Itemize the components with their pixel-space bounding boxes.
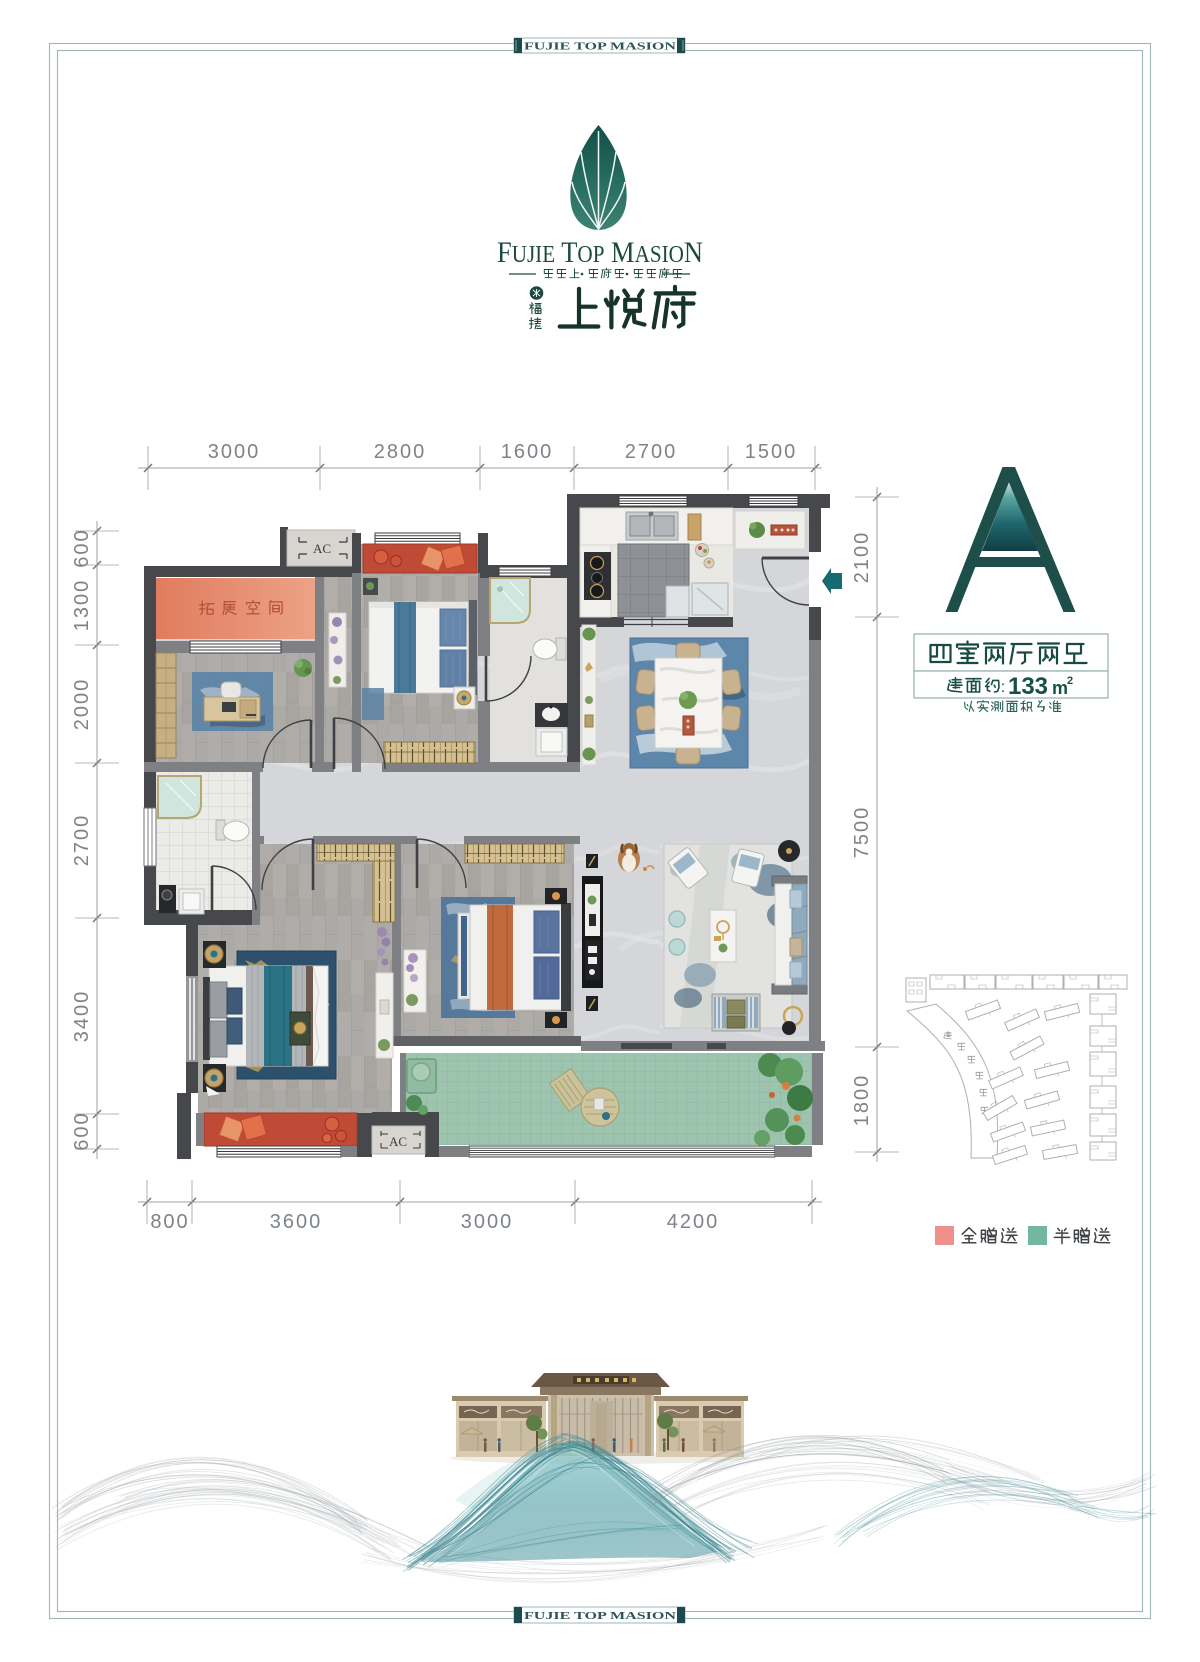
svg-text:m: m — [1052, 678, 1068, 698]
svg-text:2: 2 — [1067, 675, 1073, 687]
svg-text:800: 800 — [150, 1211, 189, 1233]
svg-text:FUJIE TOP MASION: FUJIE TOP MASION — [524, 1611, 677, 1622]
svg-text:133: 133 — [1008, 673, 1048, 700]
svg-text:4200: 4200 — [667, 1211, 720, 1233]
svg-text:1600: 1600 — [501, 441, 554, 463]
svg-text:2000: 2000 — [71, 678, 93, 731]
svg-text:7500: 7500 — [851, 806, 873, 859]
svg-text:2800: 2800 — [374, 441, 427, 463]
svg-text:1800: 1800 — [851, 1074, 873, 1127]
svg-text:3000: 3000 — [208, 441, 261, 463]
svg-text:3600: 3600 — [270, 1211, 323, 1233]
svg-text:2700: 2700 — [625, 441, 678, 463]
svg-text::: : — [1001, 679, 1005, 696]
svg-text:FUJIE TOP MASION: FUJIE TOP MASION — [524, 42, 677, 53]
svg-text:AC: AC — [389, 1134, 407, 1149]
svg-text:600: 600 — [71, 528, 93, 567]
svg-text:1300: 1300 — [71, 579, 93, 632]
svg-text:AC: AC — [313, 541, 331, 556]
svg-text:3400: 3400 — [71, 990, 93, 1043]
svg-text:1500: 1500 — [745, 441, 798, 463]
svg-text:3000: 3000 — [461, 1211, 514, 1233]
svg-text:600: 600 — [71, 1111, 93, 1150]
svg-text:2100: 2100 — [851, 531, 873, 584]
svg-text:2700: 2700 — [71, 814, 93, 867]
